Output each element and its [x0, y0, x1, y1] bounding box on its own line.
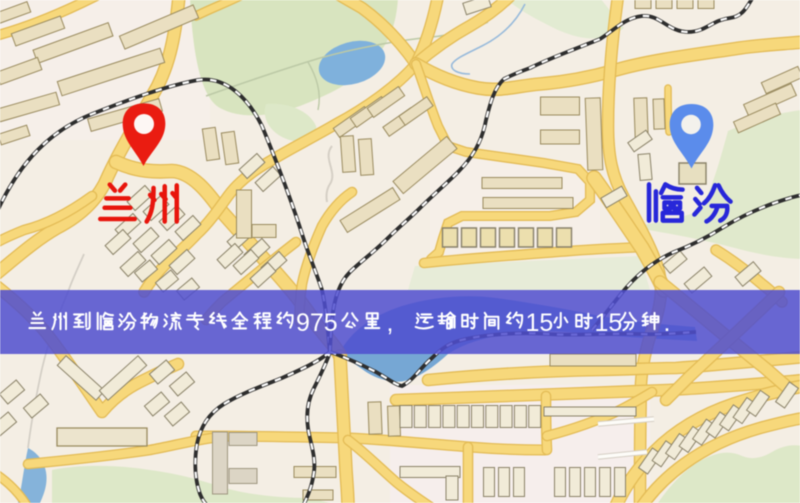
- svg-text:15: 15: [526, 309, 554, 337]
- svg-text:975: 975: [296, 309, 338, 337]
- svg-text:,: ,: [387, 309, 394, 337]
- svg-text:.: .: [664, 309, 671, 337]
- svg-text:15: 15: [595, 309, 623, 337]
